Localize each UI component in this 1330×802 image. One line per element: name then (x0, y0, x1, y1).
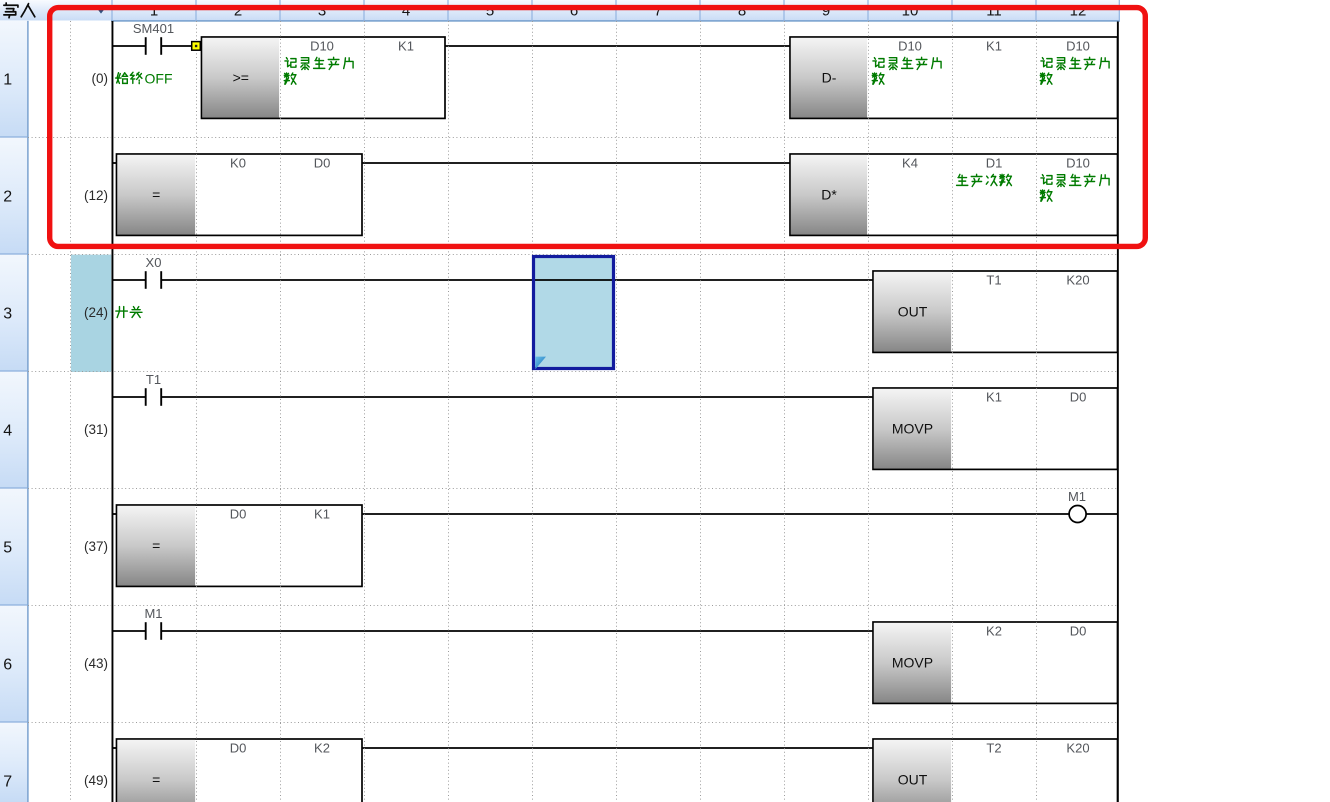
svg-text:M1: M1 (1068, 489, 1086, 504)
svg-text:SM401: SM401 (133, 21, 174, 36)
svg-text:4: 4 (3, 422, 12, 439)
svg-text:=: = (152, 186, 160, 202)
svg-text:X0: X0 (146, 255, 162, 270)
svg-text:(12): (12) (84, 188, 108, 203)
svg-text:(37): (37) (84, 539, 108, 554)
svg-text:K1: K1 (314, 507, 330, 522)
svg-text:D0: D0 (1070, 390, 1087, 405)
svg-text:K20: K20 (1066, 741, 1089, 756)
svg-text:6: 6 (3, 656, 12, 673)
svg-text:D*: D* (821, 186, 837, 202)
svg-text:2: 2 (3, 188, 12, 205)
svg-text:D1: D1 (986, 156, 1003, 171)
svg-text:(43): (43) (84, 656, 108, 671)
svg-text:K20: K20 (1066, 273, 1089, 288)
svg-text:T1: T1 (986, 273, 1001, 288)
svg-text:T2: T2 (986, 741, 1001, 756)
svg-text:5: 5 (3, 539, 12, 556)
svg-text:K1: K1 (986, 390, 1002, 405)
svg-text:MOVP: MOVP (892, 420, 933, 436)
svg-text:OFF: OFF (145, 71, 173, 87)
svg-text:(24): (24) (84, 305, 108, 320)
svg-text:K1: K1 (398, 39, 414, 54)
svg-text:D0: D0 (230, 741, 247, 756)
svg-text:D-: D- (822, 69, 837, 85)
svg-text:(49): (49) (84, 773, 108, 788)
svg-text:D10: D10 (1066, 39, 1090, 54)
svg-text:K4: K4 (902, 156, 918, 171)
svg-text:MOVP: MOVP (892, 654, 933, 670)
svg-text:D10: D10 (1066, 156, 1090, 171)
svg-text:K1: K1 (986, 39, 1002, 54)
svg-text:M1: M1 (144, 606, 162, 621)
svg-text:D0: D0 (314, 156, 331, 171)
svg-text:OUT: OUT (898, 771, 928, 787)
svg-text:T1: T1 (146, 372, 161, 387)
svg-text:>=: >= (233, 69, 249, 85)
svg-text:(0): (0) (92, 71, 109, 86)
svg-text:K2: K2 (314, 741, 330, 756)
svg-text:D10: D10 (310, 39, 334, 54)
svg-text:=: = (152, 537, 160, 553)
svg-text:=: = (152, 771, 160, 787)
svg-text:(31): (31) (84, 422, 108, 437)
svg-text:K2: K2 (986, 624, 1002, 639)
svg-text:7: 7 (3, 773, 12, 790)
svg-text:OUT: OUT (898, 303, 928, 319)
svg-text:3: 3 (3, 305, 12, 322)
svg-text:D10: D10 (898, 39, 922, 54)
svg-text:K0: K0 (230, 156, 246, 171)
svg-text:D0: D0 (230, 507, 247, 522)
svg-text:1: 1 (3, 71, 12, 88)
svg-text:D0: D0 (1070, 624, 1087, 639)
